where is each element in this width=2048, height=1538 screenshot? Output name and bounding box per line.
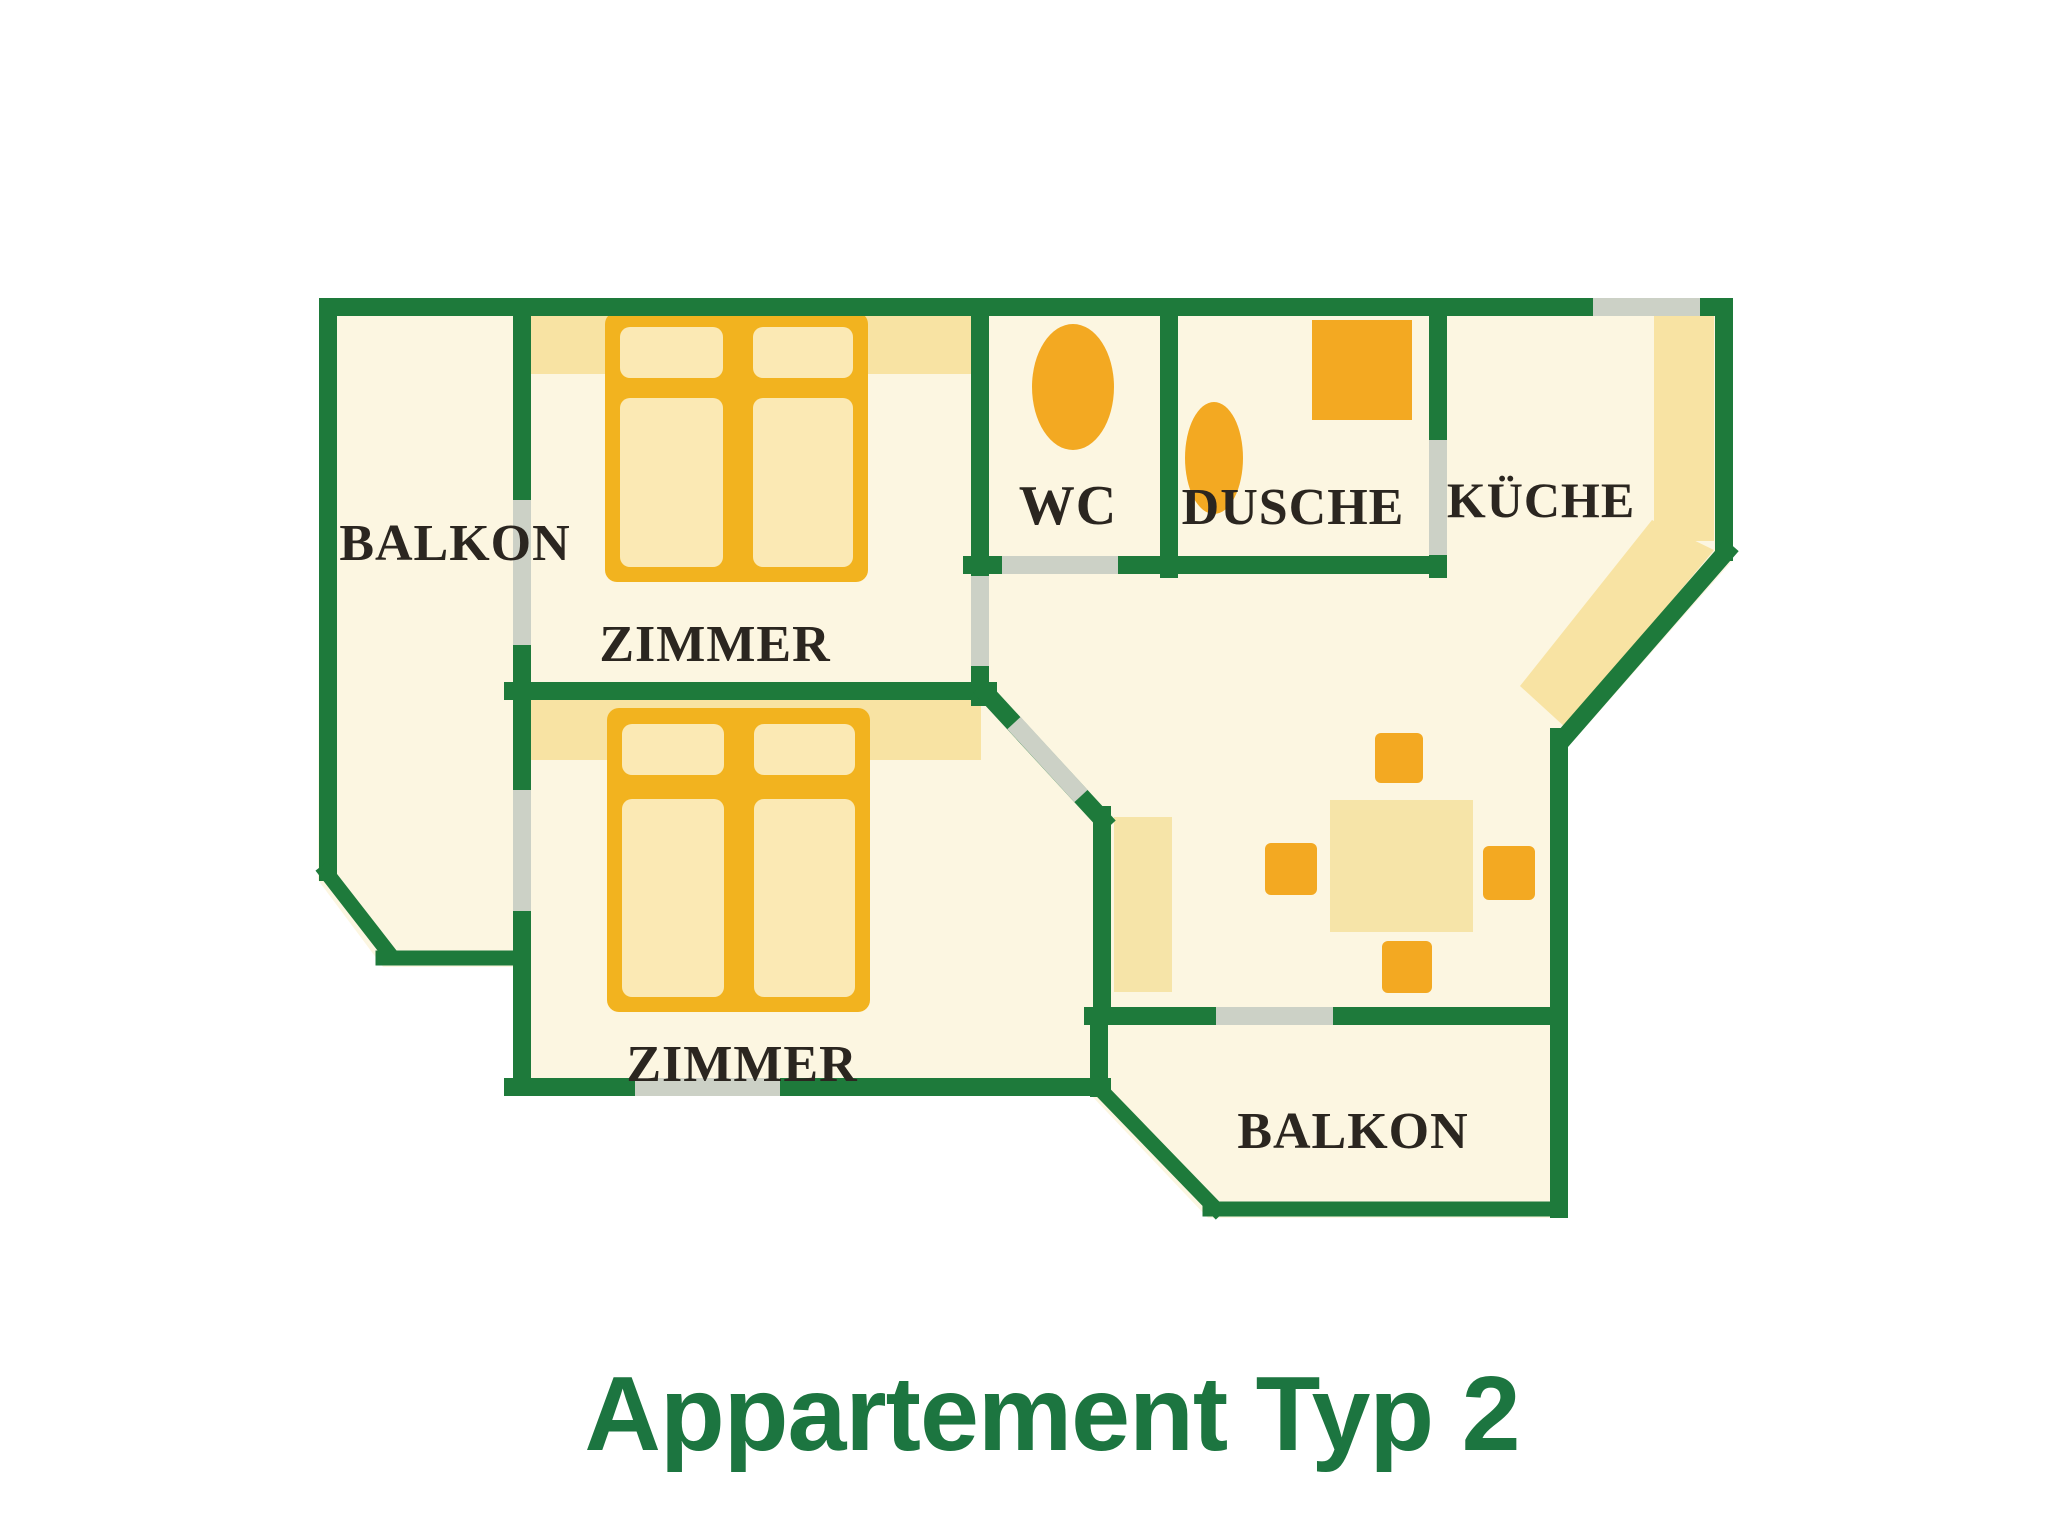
bed1-pillow-right bbox=[753, 327, 853, 378]
room-label-wc: WC bbox=[1019, 475, 1117, 537]
toilet-icon bbox=[1032, 324, 1114, 450]
sideboard bbox=[1114, 817, 1172, 992]
bed2-pillow-left bbox=[622, 724, 724, 775]
bed2-mattress-right bbox=[754, 799, 855, 997]
bed1-mattress-left bbox=[620, 398, 723, 567]
bed1-pillow-left bbox=[620, 327, 723, 378]
room-label-zimmer-bottom: ZIMMER bbox=[626, 1036, 858, 1093]
room-label-dusche: DUSCHE bbox=[1182, 479, 1405, 536]
floor-plan-page: BALKON ZIMMER WC DUSCHE KÜCHE ZIMMER BAL… bbox=[0, 0, 2048, 1538]
room-label-zimmer-top: ZIMMER bbox=[599, 616, 831, 673]
chair-icon-top bbox=[1375, 733, 1423, 783]
bed2-mattress-left bbox=[622, 799, 724, 997]
room-label-kueche: KÜCHE bbox=[1447, 472, 1635, 528]
dining-table-icon bbox=[1330, 800, 1473, 932]
room-label-balkon-top: BALKON bbox=[339, 515, 570, 572]
room-label-balkon-bottom: BALKON bbox=[1237, 1103, 1468, 1160]
kitchen-counter-side bbox=[1654, 316, 1714, 541]
bed2-pillow-right bbox=[754, 724, 855, 775]
bed1-mattress-right bbox=[753, 398, 853, 567]
floor-plan-svg: BALKON ZIMMER WC DUSCHE KÜCHE ZIMMER BAL… bbox=[0, 0, 2048, 1538]
double-bed-icon-1 bbox=[605, 312, 868, 582]
plan-title: Appartement Typ 2 bbox=[584, 1355, 1519, 1473]
shower-tray-icon bbox=[1312, 320, 1412, 420]
chair-icon-left bbox=[1265, 843, 1317, 895]
chair-icon-right bbox=[1483, 846, 1535, 900]
chair-icon-bottom bbox=[1382, 941, 1432, 993]
double-bed-icon-2 bbox=[607, 708, 870, 1012]
